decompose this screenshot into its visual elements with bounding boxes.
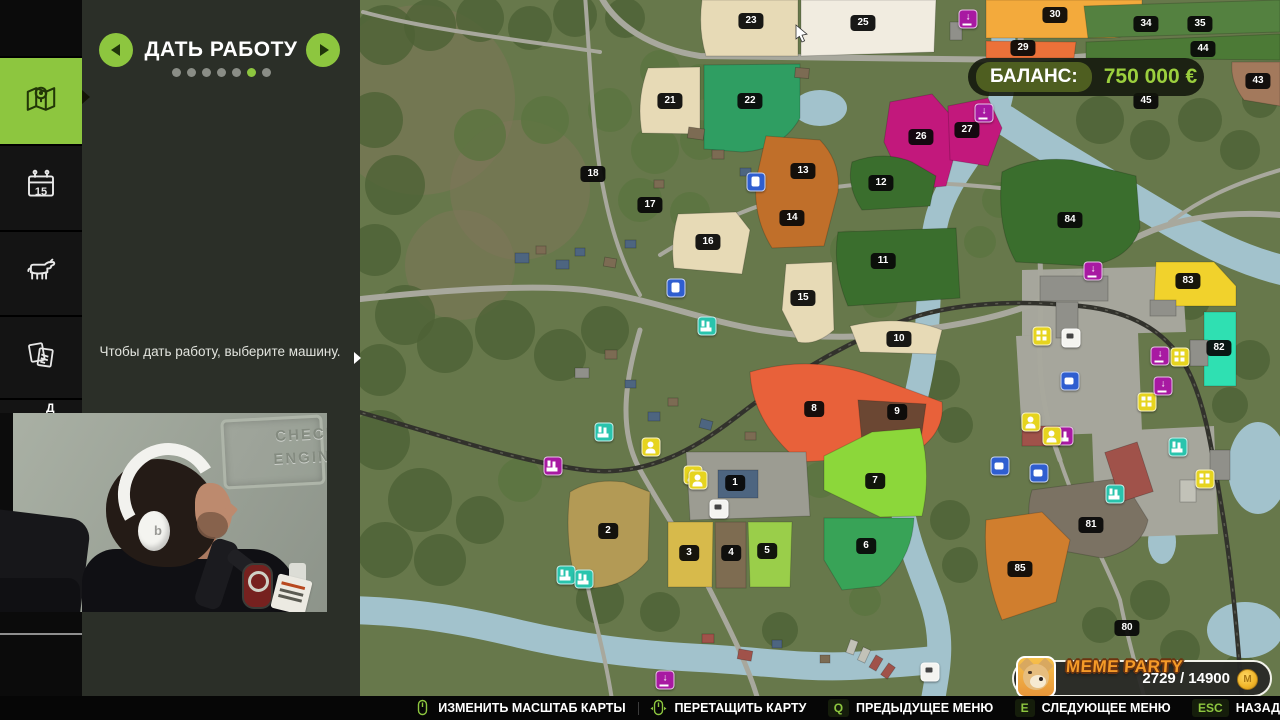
person-map-icon: [689, 471, 708, 490]
page-dot-2: [187, 68, 196, 77]
webcam-overlay: CHECK ENGINE b: [0, 413, 327, 612]
hint-e: EСЛЕДУЮЩЕЕ МЕНЮ: [1015, 699, 1171, 717]
field-badge-3: 3: [679, 545, 699, 561]
key-e: E: [1015, 699, 1035, 717]
key-q: Q: [828, 699, 849, 717]
sidebar-item-animals[interactable]: [0, 230, 82, 315]
page-dot-7: [262, 68, 271, 77]
person-map-icon: [1043, 427, 1062, 446]
field-badge-2: 2: [598, 523, 618, 539]
calendar-day-number: 15: [35, 186, 47, 198]
grid-map-icon: [1171, 348, 1190, 367]
sidebar-item-map[interactable]: [0, 56, 82, 144]
factory-map-icon: [557, 566, 576, 585]
sidebar-divider: [0, 633, 82, 635]
fuel-map-icon: [747, 173, 766, 192]
hint-divider: [638, 702, 639, 715]
factory-map-icon: [575, 570, 594, 589]
field-badge-26: 26: [908, 129, 933, 145]
field-badge-27: 27: [954, 122, 979, 138]
sidebar-item-calendar[interactable]: 15: [0, 144, 82, 230]
keybind-bar: ИЗМЕНИТЬ МАСШТАБ КАРТЫПЕРЕТАЩИТЬ КАРТУQП…: [0, 696, 1280, 720]
wvehicle-map-icon: [921, 663, 940, 682]
sell-map-icon: ↓: [1084, 262, 1103, 281]
hint-q: QПРЕДЫДУЩЕЕ МЕНЮ: [828, 699, 994, 717]
active-tab-notch: [82, 90, 90, 104]
stream-goal-widget: MEME PARTY 2729 / 14900 M: [1012, 660, 1272, 697]
wvehicle-map-icon: [1062, 329, 1081, 348]
stream-goal-progress: 2729 / 14900: [1142, 670, 1230, 687]
field-badge-5: 5: [757, 543, 777, 559]
page-dot-5: [232, 68, 241, 77]
mouse-cursor: [795, 24, 808, 48]
fuel-map-icon: [667, 279, 686, 298]
hint-label: ПЕРЕТАЩИТЬ КАРТУ: [674, 701, 806, 715]
factory-map-icon: [698, 317, 717, 336]
page-dot-1: [172, 68, 181, 77]
factory-map-icon: [1169, 438, 1188, 457]
hint-mouse-wheel: ИЗМЕНИТЬ МАСШТАБ КАРТЫ: [414, 699, 625, 718]
factory-map-icon: [1106, 485, 1125, 504]
right-arrow-icon: [320, 44, 329, 56]
red-logo-badge: [242, 563, 273, 609]
field-badge-18: 18: [580, 166, 605, 182]
field-badge-44: 44: [1190, 41, 1215, 57]
panel-pointer-icon: [354, 352, 361, 364]
field-badge-25: 25: [850, 15, 875, 31]
page-dot-3: [202, 68, 211, 77]
docs-icon: [23, 337, 59, 378]
sell-map-icon: ↓: [975, 104, 994, 123]
field-badge-34: 34: [1133, 16, 1158, 32]
hint-mouse-drag: ПЕРЕТАЩИТЬ КАРТУ: [650, 699, 806, 718]
grid-map-icon: [1196, 470, 1215, 489]
grid-map-icon: [1033, 327, 1052, 346]
sell-map-icon: ↓: [1154, 377, 1173, 396]
hint-label: ИЗМЕНИТЬ МАСШТАБ КАРТЫ: [438, 701, 625, 715]
balance-value: 750 000 €: [1104, 65, 1197, 89]
office-chair-seat: [0, 578, 80, 612]
field-badge-13: 13: [790, 163, 815, 179]
field-badge-17: 17: [637, 197, 662, 213]
field-badge-15: 15: [790, 290, 815, 306]
field-badge-21: 21: [657, 93, 682, 109]
sell-map-icon: ↓: [959, 10, 978, 29]
person-map-icon: [1022, 413, 1041, 432]
hint-label: СЛЕДУЮЩЕЕ МЕНЮ: [1042, 701, 1171, 715]
coin-icon: M: [1237, 669, 1258, 690]
field-badge-35: 35: [1187, 16, 1212, 32]
mouse-drag-icon: [650, 699, 667, 718]
map-icon: [23, 81, 59, 122]
pagination-dots: [82, 68, 360, 77]
field-badge-14: 14: [779, 210, 804, 226]
field-badge-11: 11: [871, 253, 896, 269]
person-map-icon: [642, 438, 661, 457]
headphones-earcup: b: [138, 511, 170, 551]
field-badge-83: 83: [1175, 273, 1200, 289]
sell-map-icon: ↓: [1151, 347, 1170, 366]
field-badge-43: 43: [1245, 73, 1270, 89]
mouse-wheel-icon: [414, 699, 431, 718]
page-dot-4: [217, 68, 226, 77]
field-badge-22: 22: [737, 93, 762, 109]
check-engine-sign: CHECK ENGINE: [220, 414, 326, 489]
factory-map-icon: [595, 423, 614, 442]
field-badge-6: 6: [856, 538, 876, 554]
vehicle-map-icon: [1061, 372, 1080, 391]
field-badge-9: 9: [887, 404, 907, 420]
panel-instruction: Чтобы дать работу, выберите машину.: [92, 344, 348, 361]
field-badge-12: 12: [868, 175, 893, 191]
field-badge-16: 16: [695, 234, 720, 250]
field-badge-80: 80: [1114, 620, 1139, 636]
field-badge-7: 7: [865, 473, 885, 489]
next-page-button[interactable]: [306, 33, 340, 67]
field-badge-29: 29: [1010, 40, 1035, 56]
field-badge-85: 85: [1007, 561, 1032, 577]
field-badge-84: 84: [1057, 212, 1082, 228]
balance-label: БАЛАНС:: [976, 62, 1092, 92]
field-badge-81: 81: [1078, 517, 1103, 533]
doge-nose: [1039, 677, 1043, 681]
field-badge-23: 23: [738, 13, 763, 29]
sell-map-icon: ↓: [656, 671, 675, 690]
doge-eye: [1028, 671, 1032, 674]
vehicle-map-icon: [1030, 464, 1049, 483]
white-card: [270, 573, 312, 612]
grid-map-icon: [1138, 393, 1157, 412]
balance-display: БАЛАНС: 750 000 €: [968, 58, 1204, 96]
game-screen: 2325302934354443452122262713141218171684…: [0, 0, 1280, 720]
wvehicle-map-icon: [710, 500, 729, 519]
field-badge-1: 1: [725, 475, 745, 491]
field-badge-8: 8: [804, 401, 824, 417]
field-badge-30: 30: [1042, 7, 1067, 23]
page-dot-6: [247, 68, 256, 77]
key-esc: ESC: [1192, 699, 1229, 717]
hint-label: НАЗАД: [1236, 701, 1280, 715]
vehicle-map-icon: [991, 457, 1010, 476]
field-badge-4: 4: [721, 545, 741, 561]
hint-label: ПРЕДЫДУЩЕЕ МЕНЮ: [856, 701, 993, 715]
sidebar-item-contracts[interactable]: [0, 315, 82, 398]
cow-icon: [22, 252, 60, 295]
factory-map-icon: [544, 457, 563, 476]
hint-esc: ESCНАЗАД: [1192, 699, 1280, 717]
field-badge-10: 10: [886, 331, 911, 347]
field-badge-82: 82: [1206, 340, 1231, 356]
doge-avatar: [1016, 656, 1056, 698]
doge-muzzle: [1030, 675, 1046, 688]
